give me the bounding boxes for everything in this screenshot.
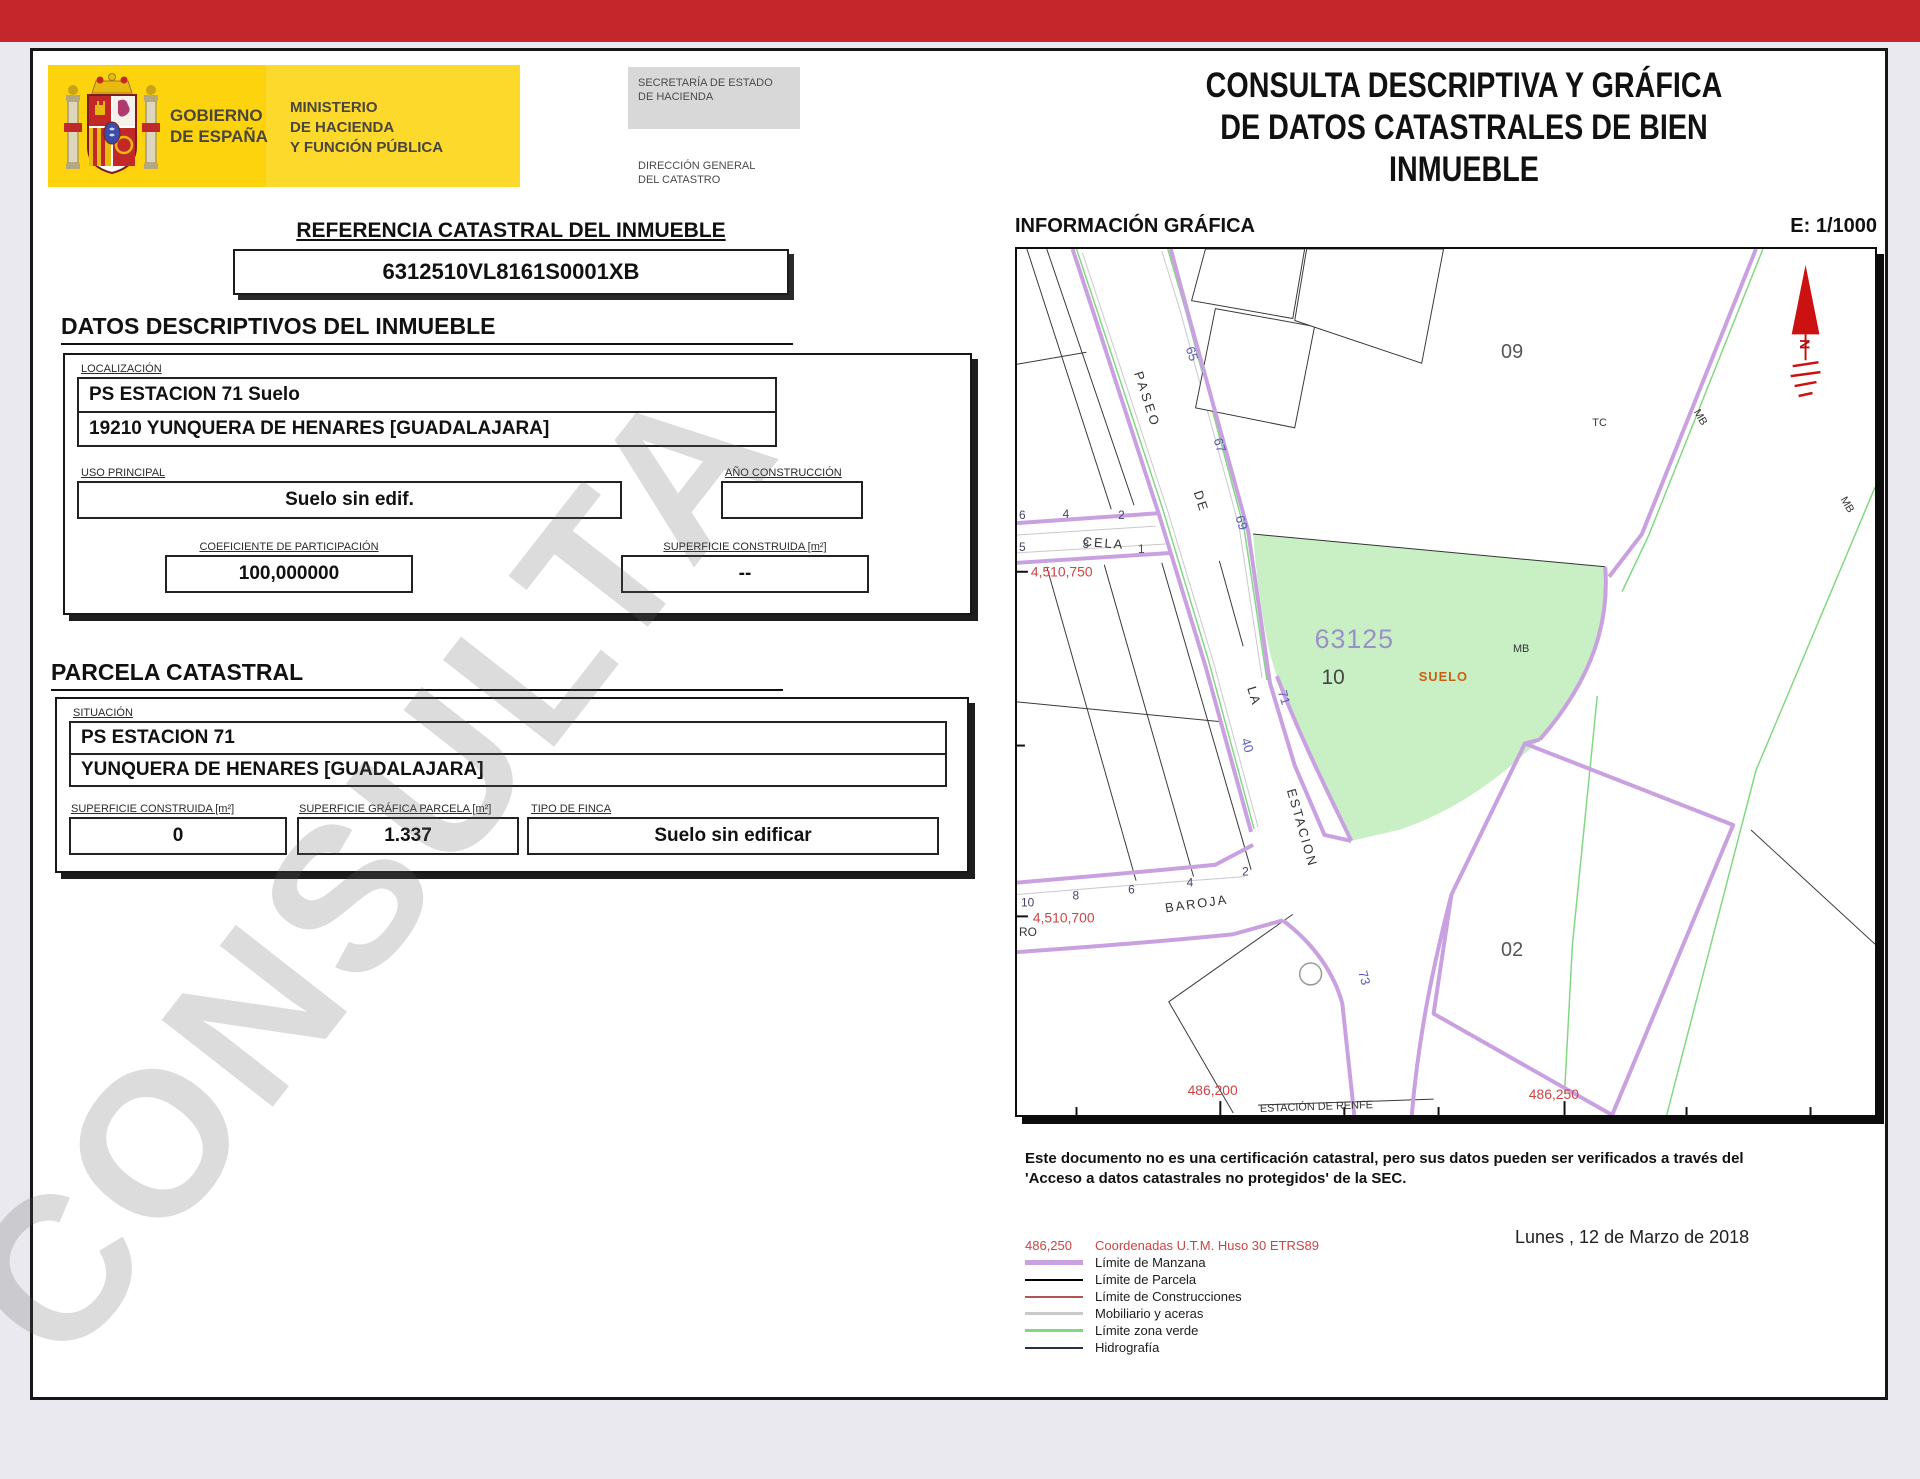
street-ro-fragment: RO xyxy=(1019,925,1037,939)
cadastral-map: N PASEO DE LA ESTACION CELA BAROJA RO ES… xyxy=(1015,247,1877,1117)
coord-4510700: 4,510,700 xyxy=(1033,909,1095,925)
north-arrow-icon: N xyxy=(1791,265,1821,396)
svg-text:40: 40 xyxy=(1238,736,1257,754)
block-10-label: 10 xyxy=(1322,666,1345,689)
svg-text:1: 1 xyxy=(1138,542,1145,556)
svg-text:73: 73 xyxy=(1355,969,1373,987)
map-scale: E: 1/1000 xyxy=(1790,215,1877,238)
document-date: Lunes , 12 de Marzo de 2018 xyxy=(1515,1227,1749,1248)
coeficiente-value: 100,000000 xyxy=(165,555,413,593)
localizacion-line1: PS ESTACION 71 Suelo xyxy=(77,377,777,413)
gobierno-title: GOBIERNO DE ESPAÑA xyxy=(170,105,268,147)
government-logo-block: GOBIERNO DE ESPAÑA MINISTERIO DE HACIEND… xyxy=(48,65,520,187)
datos-box: LOCALIZACIÓN PS ESTACION 71 Suelo 19210 … xyxy=(63,353,972,615)
svg-text:4: 4 xyxy=(1187,876,1194,890)
map-heading: INFORMACIÓN GRÁFICA xyxy=(1015,215,1255,238)
coord-4510750: 4,510,750 xyxy=(1031,564,1093,580)
superficie-construida-label: SUPERFICIE CONSTRUIDA [m²] xyxy=(621,541,869,553)
street-estacion-label: ESTACION xyxy=(1284,787,1321,869)
map-legend: 486,250 Coordenadas U.T.M. Huso 30 ETRS8… xyxy=(1025,1237,1319,1356)
street-paseo-label: PASEO xyxy=(1131,369,1163,429)
coord-486200: 486,200 xyxy=(1188,1082,1238,1098)
situacion-label: SITUACIÓN xyxy=(73,707,133,719)
situacion-line1: PS ESTACION 71 xyxy=(69,721,947,755)
svg-text:5: 5 xyxy=(1019,540,1026,554)
block-02-label: 02 xyxy=(1501,939,1523,961)
disclaimer-text: Este documento no es una certificación c… xyxy=(1025,1149,1871,1189)
hidrografia-swatch xyxy=(1025,1347,1083,1349)
top-red-bar xyxy=(0,0,1920,42)
svg-text:2: 2 xyxy=(1242,865,1249,879)
block-09-label: 09 xyxy=(1501,341,1523,363)
secretaria-box: SECRETARÍA DE ESTADO DE HACIENDA xyxy=(628,67,800,129)
manzana-swatch xyxy=(1025,1260,1083,1265)
mb-label-3: MB xyxy=(1513,643,1529,655)
coord-486250: 486,250 xyxy=(1529,1086,1579,1102)
svg-text:2: 2 xyxy=(1118,508,1125,522)
ministerio-title: MINISTERIO DE HACIENDA Y FUNCIÓN PÚBLICA xyxy=(290,98,443,158)
street-la-label: LA xyxy=(1244,684,1264,707)
reference-heading: REFERENCIA CATASTRAL DEL INMUEBLE xyxy=(203,219,819,243)
datos-heading: DATOS DESCRIPTIVOS DEL INMUEBLE xyxy=(61,313,793,345)
svg-text:10: 10 xyxy=(1021,895,1035,909)
legend-item-manzana: Límite de Manzana xyxy=(1025,1254,1319,1271)
anio-construccion-label: AÑO CONSTRUCCIÓN xyxy=(725,467,842,479)
svg-text:3: 3 xyxy=(1082,537,1089,551)
svg-text:4: 4 xyxy=(1063,507,1070,521)
parcela-sup-construida-label: SUPERFICIE CONSTRUIDA [m²] xyxy=(71,803,234,815)
parcela-sup-grafica-value: 1.337 xyxy=(297,817,519,855)
anio-construccion-value xyxy=(721,481,863,519)
svg-text:6: 6 xyxy=(1019,508,1026,522)
spain-coat-of-arms-icon xyxy=(62,71,162,181)
localizacion-line2: 19210 YUNQUERA DE HENARES [GUADALAJARA] xyxy=(77,411,777,447)
situacion-line2: YUNQUERA DE HENARES [GUADALAJARA] xyxy=(69,753,947,787)
street-baroja-label: BAROJA xyxy=(1164,892,1229,916)
suelo-label: SUELO xyxy=(1419,669,1468,684)
document-page: GOBIERNO DE ESPAÑA MINISTERIO DE HACIEND… xyxy=(30,48,1888,1400)
svg-text:6: 6 xyxy=(1128,883,1135,897)
coeficiente-label: COEFICIENTE DE PARTICIPACIÓN xyxy=(165,541,413,553)
parcela-box: SITUACIÓN PS ESTACION 71 YUNQUERA DE HEN… xyxy=(55,697,969,873)
superficie-construida-value: -- xyxy=(621,555,869,593)
legend-item-parcela: Límite de Parcela xyxy=(1025,1271,1319,1288)
map-circle-landmark xyxy=(1300,963,1322,985)
parcela-sup-construida-value: 0 xyxy=(69,817,287,855)
uso-principal-label: USO PRINCIPAL xyxy=(81,467,165,479)
parcela-sup-grafica-label: SUPERFICIE GRÁFICA PARCELA [m²] xyxy=(299,803,491,815)
map-svg: N PASEO DE LA ESTACION CELA BAROJA RO ES… xyxy=(1017,249,1875,1115)
tc-label: TC xyxy=(1592,417,1607,429)
direccion-general-label: DIRECCIÓN GENERAL DEL CATASTRO xyxy=(638,159,755,187)
parcela-swatch xyxy=(1025,1279,1083,1281)
parcela-heading: PARCELA CATASTRAL xyxy=(51,659,783,691)
legend-coordinates-row: 486,250 Coordenadas U.T.M. Huso 30 ETRS8… xyxy=(1025,1237,1319,1254)
legend-item-construcciones: Límite de Construcciones xyxy=(1025,1288,1319,1305)
legend-item-zona-verde: Límite zona verde xyxy=(1025,1322,1319,1339)
legend-item-mobiliario: Mobiliario y aceras xyxy=(1025,1305,1319,1322)
parcel-63125-label: 63125 xyxy=(1315,624,1394,654)
renfe-label: ESTACIÓN DE RENFE xyxy=(1260,1098,1373,1115)
svg-text:8: 8 xyxy=(1073,888,1080,902)
tipo-finca-value: Suelo sin edificar xyxy=(527,817,939,855)
cadastral-reference-value: 6312510VL8161S0001XB xyxy=(233,249,789,295)
mb-label-2: MB xyxy=(1838,495,1857,515)
tipo-finca-label: TIPO DE FINCA xyxy=(531,803,611,815)
mobiliario-swatch xyxy=(1025,1312,1083,1315)
document-title: CONSULTA DESCRIPTIVA Y GRÁFICA DE DATOS … xyxy=(1152,65,1777,191)
legend-item-hidrografia: Hidrografía xyxy=(1025,1339,1319,1356)
zona-verde-swatch xyxy=(1025,1329,1083,1332)
construcciones-swatch xyxy=(1025,1296,1083,1298)
street-de-label: DE xyxy=(1191,489,1212,514)
uso-principal-value: Suelo sin edif. xyxy=(77,481,622,519)
svg-text:N: N xyxy=(1797,339,1813,349)
localizacion-label: LOCALIZACIÓN xyxy=(81,363,162,375)
